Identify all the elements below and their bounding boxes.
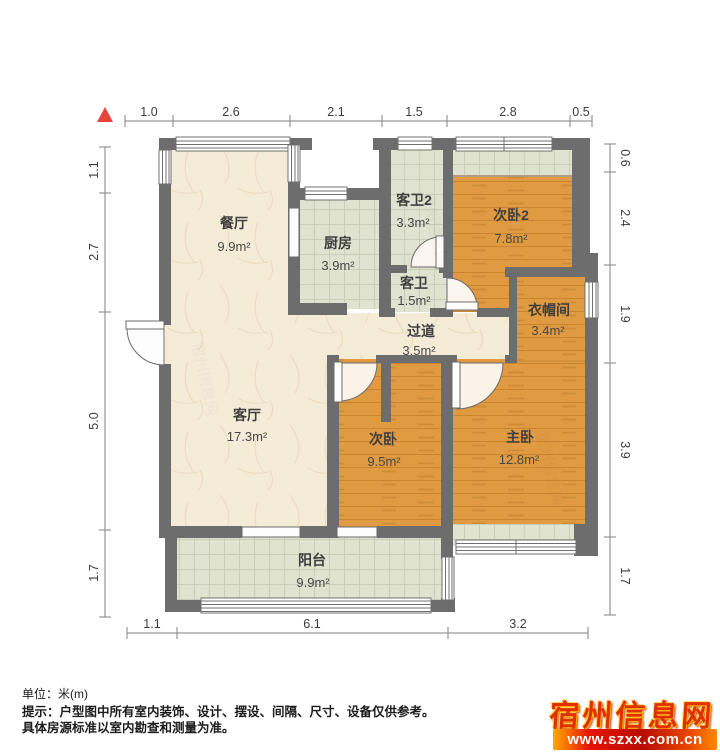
room-label-living: 客厅 <box>232 407 261 423</box>
room-label-cloakroom: 衣帽间 <box>528 302 570 318</box>
dim-left-3: 1.7 <box>87 564 101 581</box>
dim-left-1: 2.7 <box>87 243 101 260</box>
room-label-dining: 餐厅 <box>219 215 248 231</box>
room-area-hallway: 3.5m² <box>402 343 436 358</box>
window-balcony-right <box>442 557 454 600</box>
dim-left-0: 1.1 <box>87 161 101 178</box>
window-dining-top <box>176 137 290 151</box>
window-bedroom2-top <box>456 137 552 151</box>
floorplan-page: 1.0 2.6 2.1 1.5 2.8 0.5 1.1 2.7 5.0 1.7 … <box>0 0 720 755</box>
room-label-hallway: 过道 <box>407 323 435 339</box>
balcony-opening-living <box>242 527 300 537</box>
room-area-bath: 1.5m² <box>397 293 431 308</box>
disclaimer-line2: 具体房源标准以室内勘查和测量为准。 <box>22 717 235 736</box>
dim-bottom-2: 3.2 <box>509 617 526 631</box>
site-watermark-url-bar: www.szxx.com.cn <box>553 729 717 750</box>
room-area-balcony: 9.9m² <box>296 575 330 590</box>
window-dining-left <box>159 150 171 184</box>
balcony-opening-bedroom <box>337 527 377 537</box>
dim-top-1: 2.6 <box>222 105 239 119</box>
dim-right-2: 1.9 <box>618 305 632 322</box>
unit-note: 单位：米(m) <box>22 685 88 702</box>
room-floor-bedroom2 <box>447 175 572 271</box>
window-balcony-rail <box>201 598 431 613</box>
floorplan-drawing: 1.0 2.6 2.1 1.5 2.8 0.5 1.1 2.7 5.0 1.7 … <box>0 0 720 755</box>
room-area-kitchen: 3.9m² <box>321 258 355 273</box>
entry-door <box>126 321 164 365</box>
dim-top-2: 2.1 <box>327 105 344 119</box>
room-label-bedroom2: 次卧2 <box>493 207 529 223</box>
room-area-living: 17.3m² <box>227 429 268 444</box>
dim-top-4: 2.8 <box>499 105 516 119</box>
dim-top-0: 1.0 <box>140 105 157 119</box>
window-cloakroom-right <box>585 282 598 318</box>
room-area-master: 12.8m² <box>499 452 540 467</box>
window-master-bay <box>456 540 576 554</box>
dim-bottom-1: 6.1 <box>303 617 320 631</box>
dim-bottom-0: 1.1 <box>143 617 160 631</box>
room-area-bedroom2: 7.8m² <box>494 231 528 246</box>
dim-right-3: 3.9 <box>618 441 632 458</box>
dim-right-4: 1.7 <box>618 567 632 584</box>
room-label-bath: 客卫 <box>399 275 428 291</box>
dim-left-2: 5.0 <box>87 412 101 429</box>
room-area-dining: 9.9m² <box>217 239 251 254</box>
room-label-bedroom: 次卧 <box>369 431 397 447</box>
room-area-bedroom: 9.5m² <box>367 454 401 469</box>
room-area-cloakroom: 3.4m² <box>531 323 565 338</box>
room-label-balcony: 阳台 <box>298 552 326 568</box>
window-kitchen-top <box>305 187 347 200</box>
kitchen-opening <box>289 208 299 257</box>
dim-right-1: 2.4 <box>618 209 632 226</box>
room-floor-dining-living <box>165 144 294 532</box>
room-label-master: 主卧 <box>506 429 534 445</box>
room-label-kitchen: 厨房 <box>324 235 352 251</box>
north-marker-icon <box>97 107 113 122</box>
room-floor-kitchen <box>294 194 387 309</box>
window-dining-east <box>288 145 300 182</box>
site-watermark-url: www.szxx.com.cn <box>567 731 702 748</box>
window-bath2-top <box>398 137 432 150</box>
dim-right-0: 0.6 <box>618 149 632 166</box>
dim-top-3: 1.5 <box>405 105 422 119</box>
dim-top-5: 0.5 <box>572 105 589 119</box>
